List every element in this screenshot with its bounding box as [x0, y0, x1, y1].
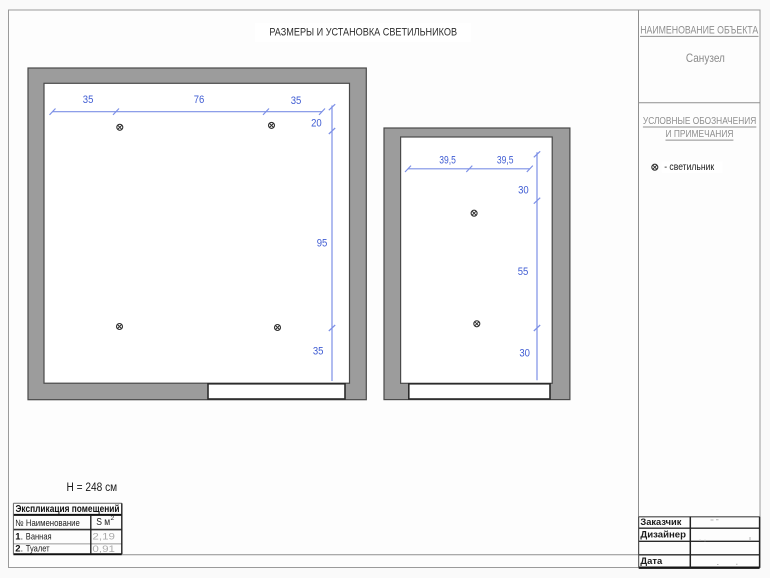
svg-text:Ванная: Ванная	[26, 531, 52, 542]
svg-text:Заказчик: Заказчик	[640, 517, 681, 528]
svg-text:И ПРИМЕЧАНИЯ: И ПРИМЕЧАНИЯ	[666, 129, 734, 140]
svg-text:95: 95	[317, 238, 328, 250]
svg-text:55: 55	[518, 266, 529, 278]
svg-text:Дизайнер: Дизайнер	[640, 529, 686, 540]
svg-text:НАИМЕНОВАНИЕ ОБЪЕКТА: НАИМЕНОВАНИЕ ОБЪЕКТА	[640, 24, 758, 36]
svg-text:2,19: 2,19	[92, 532, 115, 543]
svg-text:39,5: 39,5	[439, 154, 456, 166]
svg-text:0,91: 0,91	[92, 544, 115, 555]
svg-text:35: 35	[83, 94, 94, 106]
svg-text:УСЛОВНЫЕ ОБОЗНАЧЕНИЯ: УСЛОВНЫЕ ОБОЗНАЧЕНИЯ	[643, 116, 756, 127]
svg-text:20: 20	[311, 118, 322, 130]
svg-text:.: .	[21, 544, 24, 555]
svg-text:№ Наименование: № Наименование	[15, 518, 80, 528]
svg-text:.: .	[21, 531, 24, 542]
svg-text:2: 2	[111, 515, 115, 522]
svg-text:Туалет: Туалет	[26, 544, 50, 555]
svg-text:Н = 248 см: Н = 248 см	[67, 480, 118, 494]
svg-text:39,5: 39,5	[497, 154, 514, 166]
svg-text:РАЗМЕРЫ И УСТАНОВКА СВЕТИЛЬНИК: РАЗМЕРЫ И УСТАНОВКА СВЕТИЛЬНИКОВ	[269, 27, 457, 39]
svg-text:35: 35	[291, 95, 302, 107]
svg-text:Санузел: Санузел	[686, 51, 725, 65]
svg-text:Дата: Дата	[640, 556, 662, 567]
svg-text:Экспликация помещений: Экспликация помещений	[16, 504, 120, 515]
svg-text:76: 76	[194, 94, 205, 106]
svg-text:30: 30	[519, 347, 530, 359]
svg-text:S м: S м	[96, 517, 110, 528]
svg-text:30: 30	[518, 185, 529, 197]
svg-text:35: 35	[313, 345, 324, 357]
svg-text:- светильник: - светильник	[664, 162, 715, 173]
